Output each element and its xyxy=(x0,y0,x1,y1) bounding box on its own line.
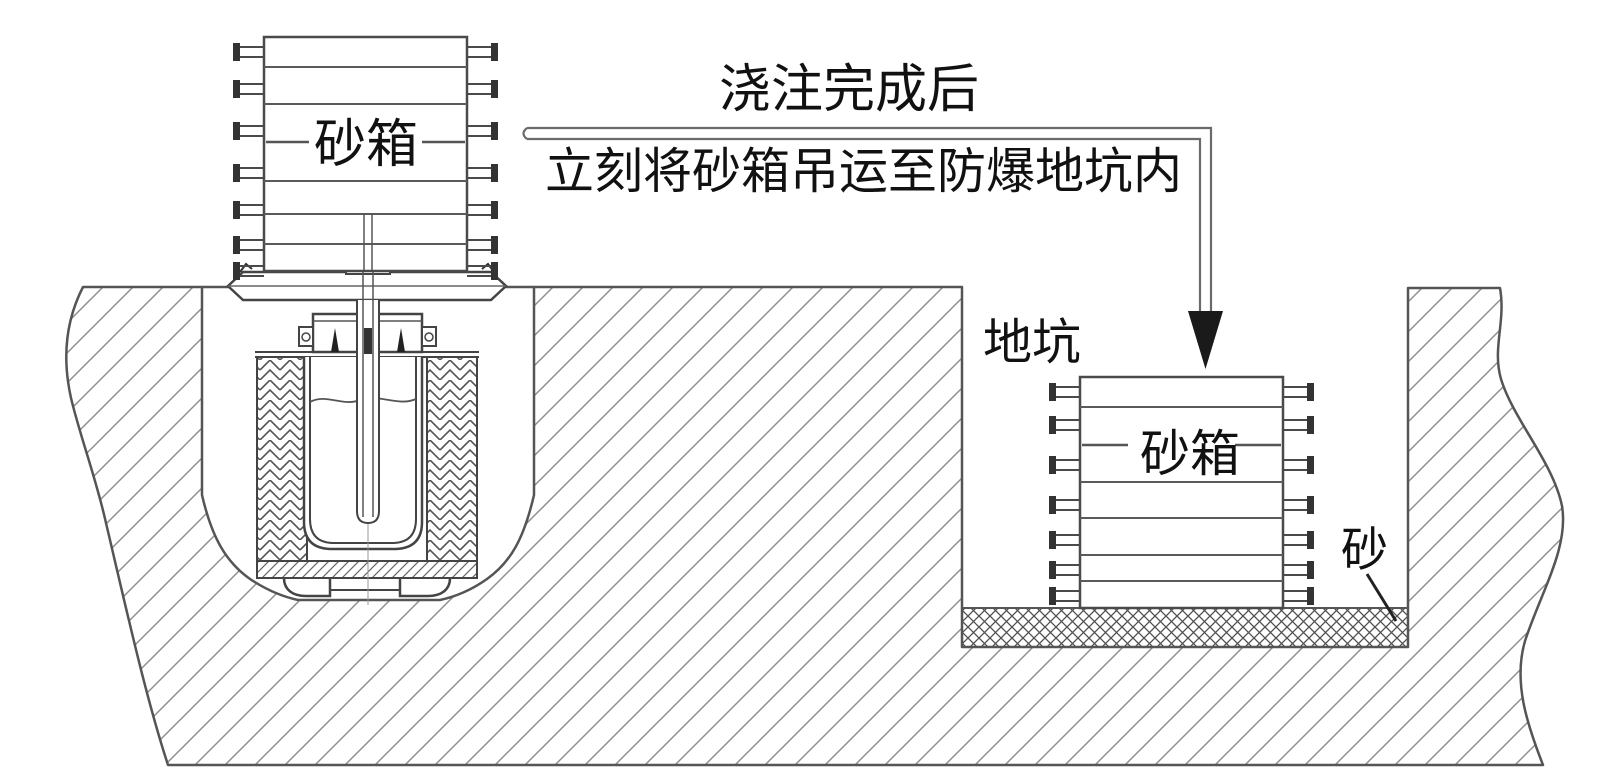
right-flask-body xyxy=(1080,377,1283,608)
caption-line2: 立刻将砂箱吊运至防爆地坑内 xyxy=(545,143,1182,200)
left-flask: 砂箱 xyxy=(233,37,498,280)
right-flask-label: 砂箱 xyxy=(1140,425,1240,483)
right-flask: 砂箱 xyxy=(1049,377,1314,608)
furnace-foot-right xyxy=(400,578,450,596)
pit-label: 地坑 xyxy=(983,314,1081,371)
crucible-ear-right xyxy=(422,327,436,346)
sand-label: 砂 xyxy=(1341,523,1388,578)
arrowhead xyxy=(1188,311,1223,369)
caption-line1: 浇注完成后 xyxy=(719,60,979,120)
stopper-rod-core xyxy=(364,328,372,354)
furnace-base-plate xyxy=(257,561,477,578)
furnace-lining-right xyxy=(427,357,477,561)
casting-pit-diagram: 砂箱 砂箱 浇注完成后 xyxy=(0,0,1600,772)
sand-layer xyxy=(962,608,1408,647)
left-flask-label: 砂箱 xyxy=(314,115,418,175)
furnace-foot-left xyxy=(284,578,330,596)
arrow-shaft-cap xyxy=(524,128,528,139)
crucible-ear-left xyxy=(299,327,313,346)
process-diagram-page: 砂箱 砂箱 浇注完成后 xyxy=(0,0,1600,772)
furnace-lining-left xyxy=(257,357,307,561)
